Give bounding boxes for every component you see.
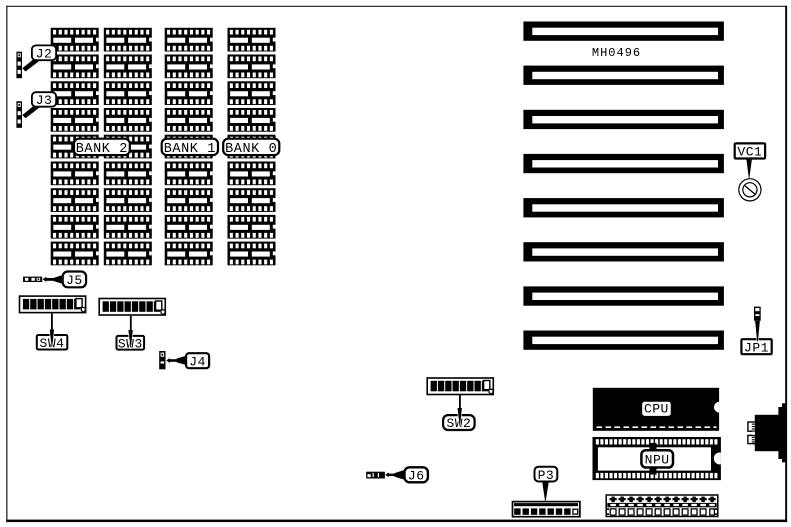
svg-text:NPU: NPU (645, 453, 670, 468)
svg-text:JP1: JP1 (744, 340, 769, 355)
svg-text:J4: J4 (189, 354, 206, 369)
svg-text:BANK 0: BANK 0 (225, 142, 277, 157)
svg-text:VC1: VC1 (737, 145, 762, 160)
svg-text:P3: P3 (538, 468, 555, 483)
svg-text:BANK 2: BANK 2 (76, 142, 128, 157)
svg-text:J3: J3 (36, 93, 53, 108)
svg-text:MH0496: MH0496 (592, 46, 641, 60)
svg-text:CPU: CPU (644, 401, 669, 416)
svg-text:BANK 1: BANK 1 (164, 142, 216, 157)
svg-text:J6: J6 (408, 469, 425, 484)
svg-text:J2: J2 (36, 47, 53, 62)
svg-text:J5: J5 (66, 273, 83, 288)
